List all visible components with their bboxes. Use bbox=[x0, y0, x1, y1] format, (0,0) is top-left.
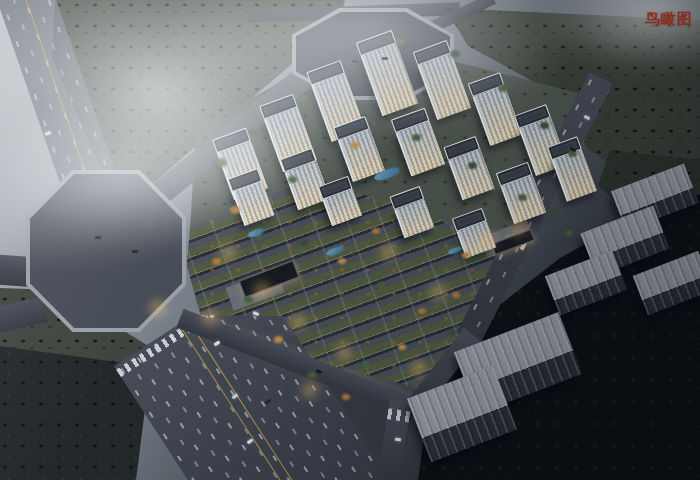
drawing-title-label: 鸟瞰图 bbox=[645, 10, 693, 29]
path-light-glow bbox=[332, 340, 356, 364]
path-light-glow bbox=[406, 356, 430, 380]
car bbox=[95, 236, 101, 239]
tree bbox=[298, 94, 308, 102]
tree bbox=[450, 50, 460, 58]
tower-facade bbox=[552, 149, 597, 201]
path-light-glow bbox=[298, 378, 322, 402]
path-light-glow bbox=[250, 278, 274, 302]
car bbox=[352, 60, 358, 63]
car bbox=[132, 250, 138, 253]
path-light-glow bbox=[216, 240, 240, 264]
path-light-glow bbox=[426, 280, 450, 304]
path-light-glow bbox=[476, 228, 500, 252]
car bbox=[382, 57, 388, 60]
tree bbox=[548, 210, 557, 217]
path-light-glow bbox=[506, 216, 530, 240]
path-light-glow bbox=[376, 240, 400, 264]
tree bbox=[565, 230, 573, 236]
tree bbox=[248, 128, 258, 136]
path-light-glow bbox=[198, 306, 222, 330]
tree bbox=[216, 158, 227, 167]
car bbox=[395, 438, 401, 441]
path-light-glow bbox=[146, 296, 170, 320]
crosswalk bbox=[387, 408, 410, 422]
path-light-glow bbox=[286, 310, 310, 334]
tree bbox=[498, 84, 508, 92]
tree bbox=[230, 206, 240, 214]
aerial-render-canvas: 鸟瞰图 bbox=[0, 0, 700, 480]
